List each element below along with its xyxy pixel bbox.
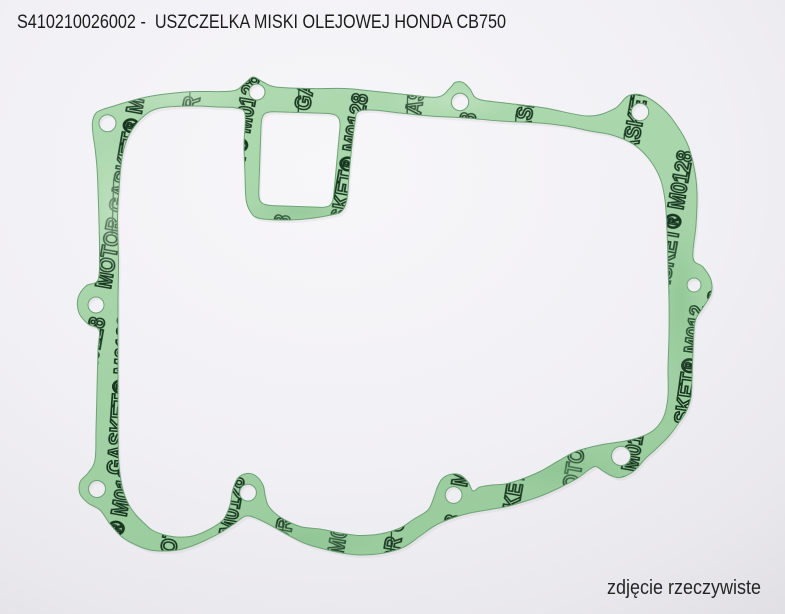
svg-text:zdjęcie rzeczywiste: zdjęcie rzeczywiste	[607, 576, 761, 599]
svg-text:S410210026002 - USZCZELKA MIS: S410210026002 - USZCZELKA MISKI OLEJOWEJ…	[17, 11, 506, 33]
